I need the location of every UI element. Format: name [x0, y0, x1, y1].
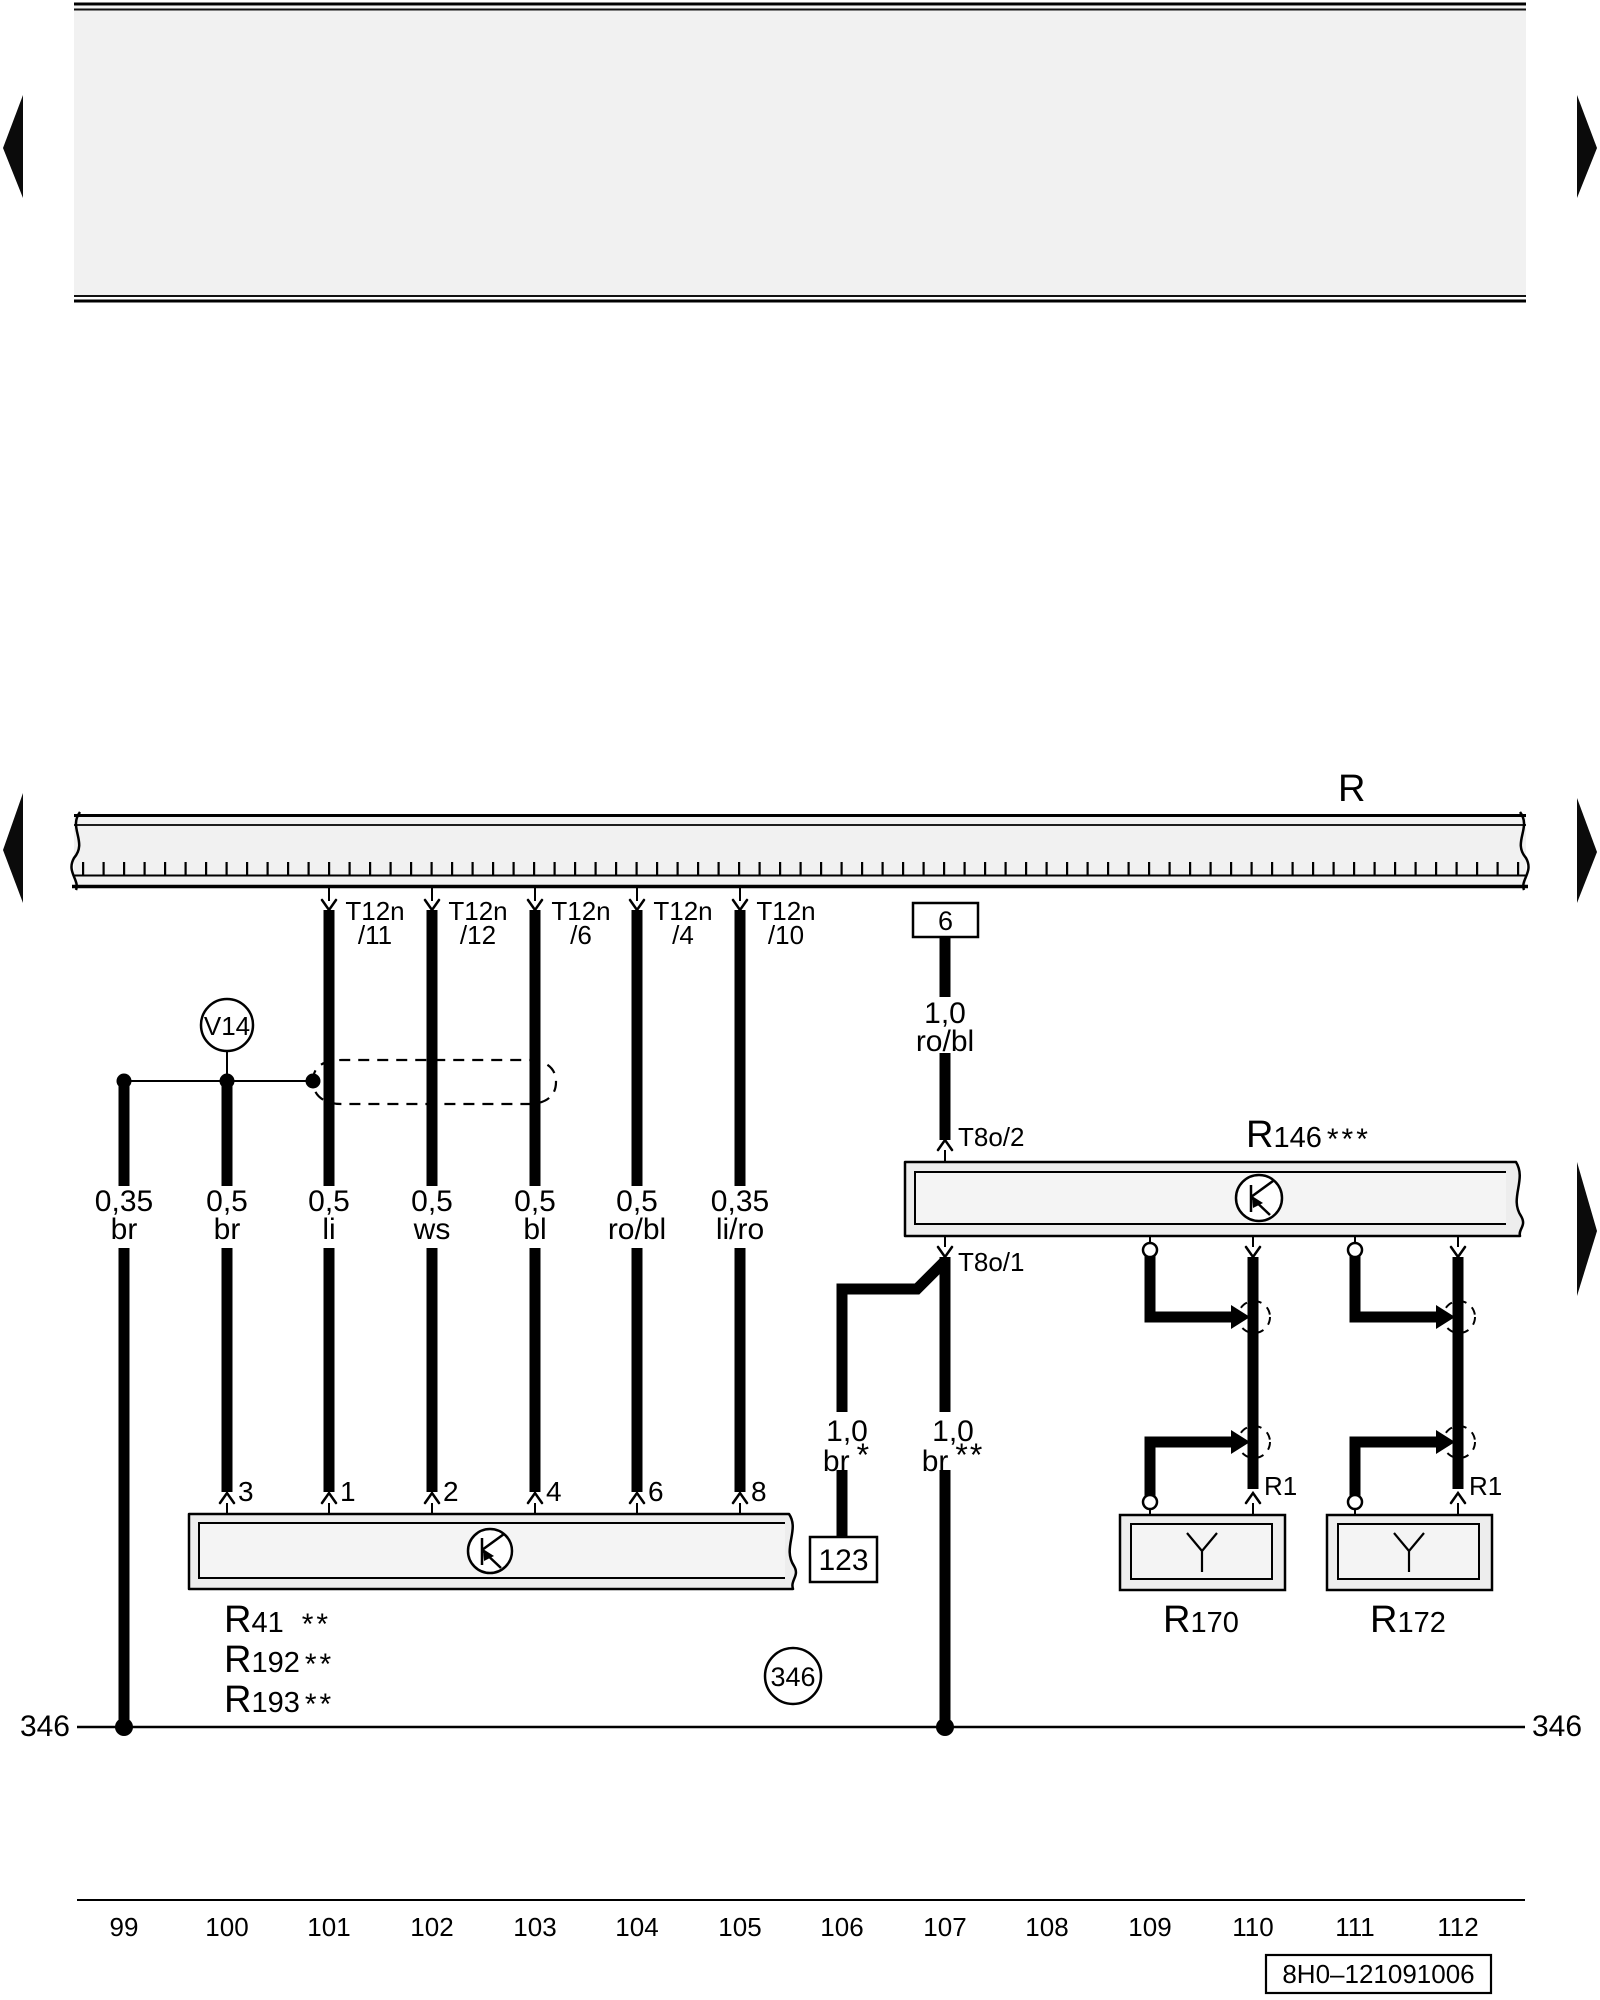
wire-br-star-branch	[842, 1261, 945, 1412]
current-track-number: 103	[495, 1912, 575, 1943]
clamp-connector-icons	[1231, 1301, 1475, 1458]
pin-number: 6	[648, 1476, 664, 1508]
component-label-r192: R 192 **	[224, 1639, 334, 1682]
page-arrow-right-top-icon	[1577, 95, 1597, 198]
current-track-number: 106	[802, 1912, 882, 1943]
pin-number: 8	[751, 1476, 767, 1508]
current-track-number: 108	[1007, 1912, 1087, 1943]
terminal-label-t12n-6: T12n /6	[539, 899, 623, 947]
terminal-label-t12n-4: T12n /4	[641, 899, 725, 947]
component-label-r41: R 41 **	[224, 1599, 331, 1642]
wire-gauge-label: 0,35 br	[69, 1188, 179, 1244]
terminal-label-t12n-11: T12n /11	[333, 899, 417, 947]
component-box-r41	[189, 1514, 796, 1589]
pin-number: 4	[546, 1476, 562, 1508]
pin-number: 1	[340, 1476, 356, 1508]
current-track-number: 99	[84, 1912, 164, 1943]
wiring-diagram-page: R T12n /11 T12n /12 T12n /6 T12n /4 T12n…	[0, 0, 1600, 2000]
part-number: 8H0–121091006	[1282, 1959, 1474, 1990]
wire-gauge-label: 0,5 ro/bl	[582, 1188, 692, 1244]
bus-tick-marks	[80, 862, 1520, 875]
ground-346-circle-label: 346	[753, 1662, 833, 1693]
pin-number: 3	[238, 1476, 254, 1508]
page-arrow-left-bus-icon	[3, 793, 23, 903]
current-track-number: 109	[1110, 1912, 1190, 1943]
component-label-r170: R 170	[1163, 1599, 1239, 1642]
page-arrow-left-top-icon	[3, 95, 23, 198]
wire-gauge-label-br-2star: 1,0 br**	[898, 1418, 1008, 1476]
pin-label-t8o2: T8o/2	[958, 1122, 1025, 1153]
heater-box-r172	[1327, 1515, 1492, 1590]
terminal-label-r1-left: R1	[1264, 1471, 1297, 1502]
header-band	[74, 4, 1526, 301]
connector-6-label: 6	[913, 906, 978, 937]
bus-bar	[71, 812, 1528, 890]
v14-label: V14	[187, 1011, 267, 1042]
pin-label-t8o1: T8o/1	[958, 1247, 1025, 1278]
current-track-number: 105	[700, 1912, 780, 1943]
current-track-number: 104	[597, 1912, 677, 1943]
transistor-icon	[1236, 1175, 1282, 1221]
ground-label-right: 346	[1532, 1710, 1582, 1744]
current-track-number: 110	[1213, 1912, 1293, 1943]
heater-box-r170	[1120, 1515, 1285, 1590]
ground-label-left: 346	[16, 1710, 70, 1744]
component-label-r172: R 172	[1370, 1599, 1446, 1642]
current-track-number: 102	[392, 1912, 472, 1943]
part-number-box: 8H0–121091006	[1266, 1955, 1491, 1993]
current-track-number: 107	[905, 1912, 985, 1943]
terminal-label-t12n-10: T12n /10	[744, 899, 828, 947]
terminal-label-t12n-12: T12n /12	[436, 899, 520, 947]
terminal-label-r1-right: R1	[1469, 1471, 1502, 1502]
wire-gauge-label: 0,35 li/ro	[685, 1188, 795, 1244]
wire-gauge-label: 0,5 br	[172, 1188, 282, 1244]
wire-gauge-label-robl: 1,0 ro/bl	[890, 1000, 1000, 1056]
current-track-number: 101	[289, 1912, 369, 1943]
wire-gauge-label: 0,5 li	[274, 1188, 384, 1244]
page-arrow-right-mid-icon	[1577, 1162, 1597, 1296]
current-track-number: 111	[1315, 1912, 1395, 1943]
pin-number: 2	[443, 1476, 459, 1508]
current-track-number: 100	[187, 1912, 267, 1943]
component-box-r146	[905, 1162, 1523, 1236]
bus-label: R	[1338, 768, 1365, 811]
current-track-number: 112	[1418, 1912, 1498, 1943]
component-label-r193: R 193 **	[224, 1679, 334, 1722]
connector-123-label: 123	[810, 1544, 877, 1578]
wire-gauge-label: 0,5 ws	[377, 1188, 487, 1244]
component-label-r146: R 146 ***	[1246, 1114, 1371, 1157]
wire-gauge-label: 0,5 bl	[480, 1188, 590, 1244]
transistor-icon	[468, 1529, 512, 1573]
page-arrow-right-bus-icon	[1577, 798, 1597, 903]
wire-gauge-label-br-star: 1,0 br*	[792, 1418, 902, 1476]
